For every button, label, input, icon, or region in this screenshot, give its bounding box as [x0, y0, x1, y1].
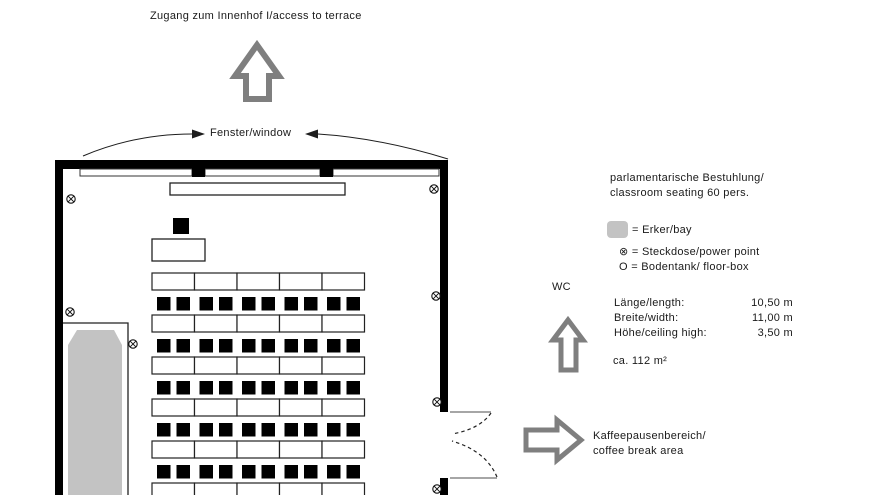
chair	[262, 297, 276, 311]
chair	[285, 339, 299, 353]
seating-table	[322, 399, 365, 416]
chair	[219, 465, 233, 479]
terrace-up-arrow-icon	[235, 45, 279, 99]
chair	[262, 465, 276, 479]
chair	[157, 465, 171, 479]
power-point-icon	[67, 195, 75, 203]
chair	[347, 339, 361, 353]
chair	[219, 381, 233, 395]
wall-right-upper	[440, 160, 448, 412]
chair	[177, 339, 191, 353]
seating-table	[322, 441, 365, 458]
chair	[200, 423, 214, 437]
window-label: Fenster/window	[210, 126, 291, 141]
window-mullion	[192, 162, 205, 177]
chair	[285, 465, 299, 479]
seating-table	[195, 357, 238, 374]
wall-top	[55, 160, 448, 169]
chair	[285, 297, 299, 311]
chair	[177, 423, 191, 437]
power-point-icon	[432, 292, 440, 300]
seating-legend: parlamentarische Bestuhlung/ classroom s…	[610, 171, 764, 201]
chair	[157, 339, 171, 353]
seating-table	[322, 357, 365, 374]
chair	[327, 423, 341, 437]
seating-table	[280, 483, 323, 495]
seating-table	[237, 399, 280, 416]
chair	[177, 297, 191, 311]
chair	[285, 381, 299, 395]
chair	[157, 297, 171, 311]
access-terrace-label: Zugang zum Innenhof I/access to terrace	[150, 9, 362, 24]
chair	[219, 297, 233, 311]
seating-table	[152, 315, 195, 332]
power-point-icon	[433, 485, 441, 493]
floor-plan-canvas: Zugang zum Innenhof I/access to terrace …	[0, 0, 880, 495]
chair	[177, 465, 191, 479]
chair	[327, 339, 341, 353]
chair	[200, 381, 214, 395]
seating-table	[195, 315, 238, 332]
seating-table	[152, 399, 195, 416]
seating-table	[237, 357, 280, 374]
window-arrow-left-icon	[305, 130, 318, 139]
seating-table	[195, 273, 238, 290]
measurement-label: Breite/width:	[614, 311, 678, 326]
coffee-right-arrow-icon	[526, 420, 581, 460]
chair	[304, 339, 318, 353]
measurement-label: Länge/length:	[614, 296, 685, 311]
chair	[347, 423, 361, 437]
chair	[285, 423, 299, 437]
chair	[157, 381, 171, 395]
power-point-icon	[129, 340, 137, 348]
chair	[200, 465, 214, 479]
seating-table	[322, 315, 365, 332]
seating-table	[237, 273, 280, 290]
bay-legend-swatch	[607, 221, 628, 238]
measurement-value: 11,00 m	[752, 311, 793, 326]
seating-table	[280, 441, 323, 458]
speaker-chair	[173, 218, 189, 234]
chair	[219, 339, 233, 353]
measurement-value: 3,50 m	[758, 326, 793, 341]
chair	[262, 381, 276, 395]
chair	[177, 381, 191, 395]
chair	[242, 339, 256, 353]
power-point-icon	[430, 185, 438, 193]
door-swing-arc-bottom	[452, 441, 497, 477]
seating-table	[152, 357, 195, 374]
seating-table	[152, 273, 195, 290]
chair	[347, 297, 361, 311]
wall-right-lower	[440, 478, 448, 495]
seating-legend-line1: parlamentarische Bestuhlung/	[610, 171, 764, 186]
window-arrow-right-icon	[192, 130, 205, 139]
chair	[262, 423, 276, 437]
seating-table	[237, 441, 280, 458]
chair	[327, 465, 341, 479]
chair	[304, 381, 318, 395]
chair	[327, 381, 341, 395]
power-point-icon	[66, 308, 74, 316]
power-legend-label: ⊗ = Steckdose/power point	[619, 245, 760, 260]
measurements-table: Länge/length: 10,50 m Breite/width: 11,0…	[614, 296, 793, 341]
chair	[219, 423, 233, 437]
measurement-row: Breite/width: 11,00 m	[614, 311, 793, 326]
window-curve-left	[83, 134, 192, 156]
wc-label: WC	[552, 280, 571, 295]
chair	[262, 339, 276, 353]
chair	[327, 297, 341, 311]
seating-table	[195, 483, 238, 495]
chair	[304, 297, 318, 311]
seating-table	[280, 399, 323, 416]
bay-legend-label: = Erker/bay	[632, 223, 692, 238]
chair	[242, 297, 256, 311]
chair	[242, 381, 256, 395]
measurement-value: 10,50 m	[751, 296, 793, 311]
seating-table	[322, 273, 365, 290]
chair	[242, 465, 256, 479]
chair	[200, 297, 214, 311]
chair	[200, 339, 214, 353]
window-curve-right	[318, 134, 448, 159]
seating-table	[322, 483, 365, 495]
seating-table	[280, 273, 323, 290]
power-point-icon	[433, 398, 441, 406]
seating-table	[237, 315, 280, 332]
measurement-label: Höhe/ceiling high:	[614, 326, 707, 341]
coffee-break-line2: coffee break area	[593, 444, 706, 459]
chair	[347, 381, 361, 395]
window-sill	[205, 169, 320, 176]
window-sill	[80, 169, 192, 176]
seating-table	[237, 483, 280, 495]
seating-table	[152, 483, 195, 495]
floorbox-legend-label: O = Bodentank/ floor-box	[619, 260, 749, 275]
seating-table	[280, 357, 323, 374]
seating-table	[195, 399, 238, 416]
window-mullion	[320, 162, 333, 177]
coffee-break-label: Kaffeepausenbereich/ coffee break area	[593, 429, 706, 459]
chair	[157, 423, 171, 437]
measurement-row: Länge/length: 10,50 m	[614, 296, 793, 311]
chair	[242, 423, 256, 437]
seating-legend-line2: classroom seating 60 pers.	[610, 186, 764, 201]
seating-table	[152, 441, 195, 458]
wall-left	[55, 160, 63, 495]
chair	[304, 465, 318, 479]
chair	[304, 423, 318, 437]
area-label: ca. 112 m²	[613, 354, 667, 369]
chair	[347, 465, 361, 479]
coffee-break-line1: Kaffeepausenbereich/	[593, 429, 706, 444]
wc-up-arrow-icon	[553, 320, 583, 370]
seating-grid	[152, 273, 365, 495]
speaker-desk	[152, 239, 205, 261]
seating-table	[195, 441, 238, 458]
sideboard	[170, 183, 345, 195]
window-sill	[333, 169, 439, 176]
measurement-row: Höhe/ceiling high: 3,50 m	[614, 326, 793, 341]
seating-table	[280, 315, 323, 332]
bay-shape	[68, 330, 122, 495]
door-swing-arc-top	[452, 413, 491, 434]
